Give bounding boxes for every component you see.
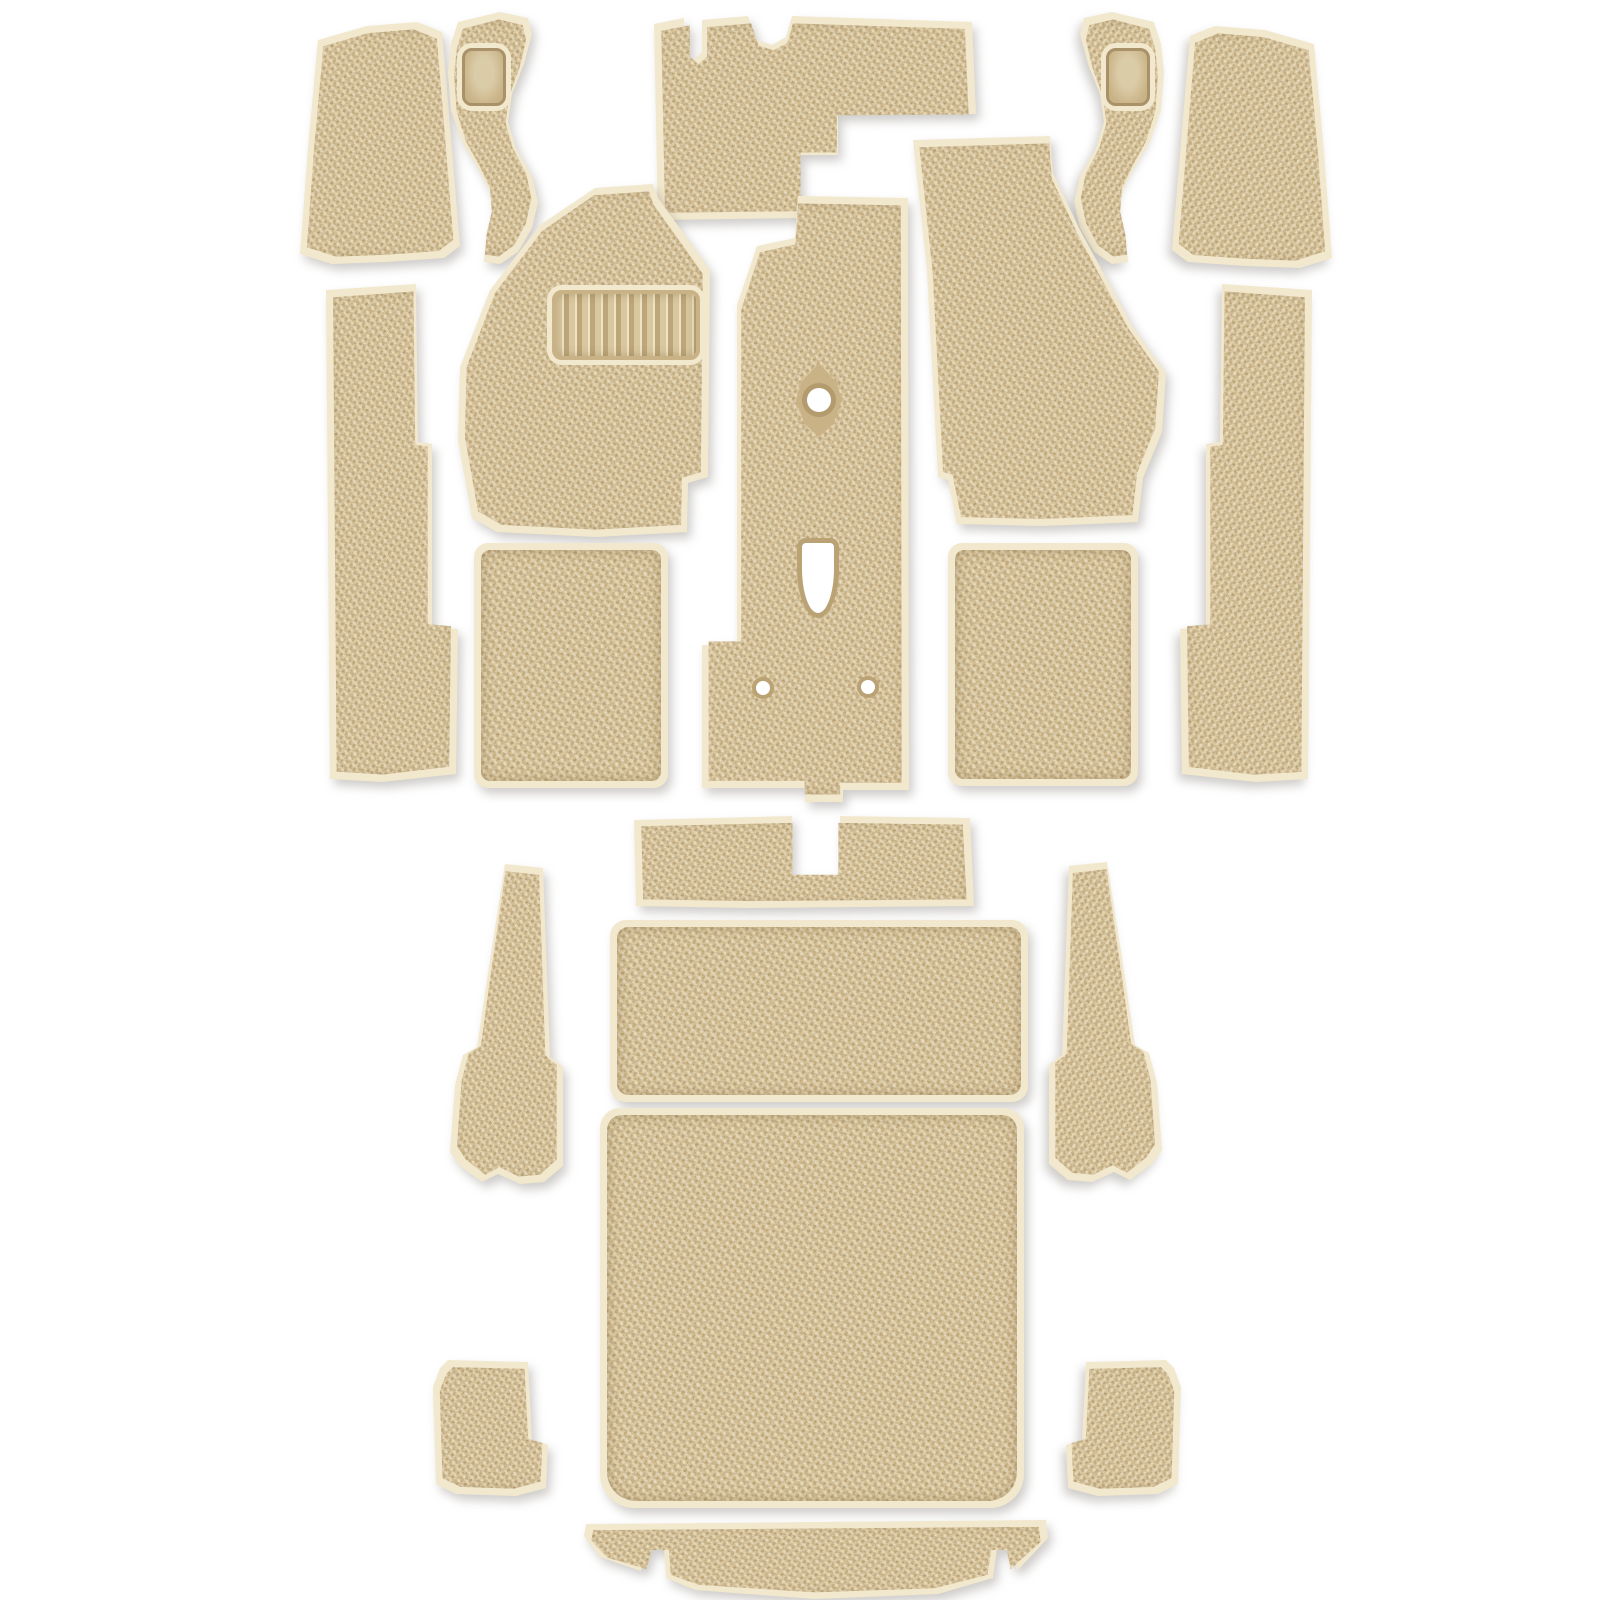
piece-front-footwell-right [892, 132, 1174, 540]
piece-tailgate-sill-carpet [588, 1524, 1047, 1597]
piece-front-footwell-left-carpet [454, 190, 707, 533]
piece-seat-crossmember [628, 812, 976, 912]
mounting-hole-left [752, 677, 774, 699]
piece-wheel-arch-right-carpet [1046, 862, 1159, 1181]
piece-rocker-right [1176, 282, 1316, 790]
mounting-hole-right [857, 676, 879, 698]
piece-cargo-floor-carpet [607, 1115, 1017, 1501]
piece-cowl-side-right-carpet [1170, 32, 1333, 263]
piece-rocker-left [322, 282, 462, 784]
piece-seat-crossmember-carpet [636, 820, 969, 905]
piece-rear-corner-left-carpet [434, 1364, 559, 1491]
piece-rear-corner-right-carpet [1056, 1364, 1181, 1491]
heel-pad-left [462, 48, 506, 106]
shifter-grommet-hole [807, 388, 831, 412]
piece-rear-footwell-right [948, 543, 1138, 786]
piece-seat-riser [610, 920, 1028, 1102]
piece-rear-footwell-left-carpet [481, 550, 661, 781]
piece-rear-corner-right [1048, 1356, 1188, 1498]
piece-tailgate-sill [580, 1516, 1054, 1600]
piece-tunnel-carpet [696, 202, 905, 797]
ribbed-heel-pad [552, 290, 700, 360]
heel-pad-right [1106, 48, 1150, 106]
carpet-kit-photo [0, 0, 1600, 1600]
piece-front-footwell-left [446, 182, 714, 540]
piece-cowl-side-right [1162, 24, 1340, 270]
piece-wheel-arch-left-carpet [454, 864, 567, 1181]
piece-cargo-floor [600, 1108, 1024, 1508]
piece-rear-footwell-right-carpet [955, 550, 1131, 779]
piece-rear-footwell-left [474, 543, 668, 788]
piece-rocker-right-carpet [1184, 290, 1309, 783]
piece-wheel-arch-left [446, 856, 574, 1188]
piece-rear-corner-left [426, 1356, 566, 1498]
piece-rocker-left-carpet [330, 290, 455, 777]
piece-wheel-arch-right [1038, 854, 1166, 1188]
piece-tunnel [688, 194, 912, 804]
piece-seat-riser-carpet [617, 927, 1021, 1095]
